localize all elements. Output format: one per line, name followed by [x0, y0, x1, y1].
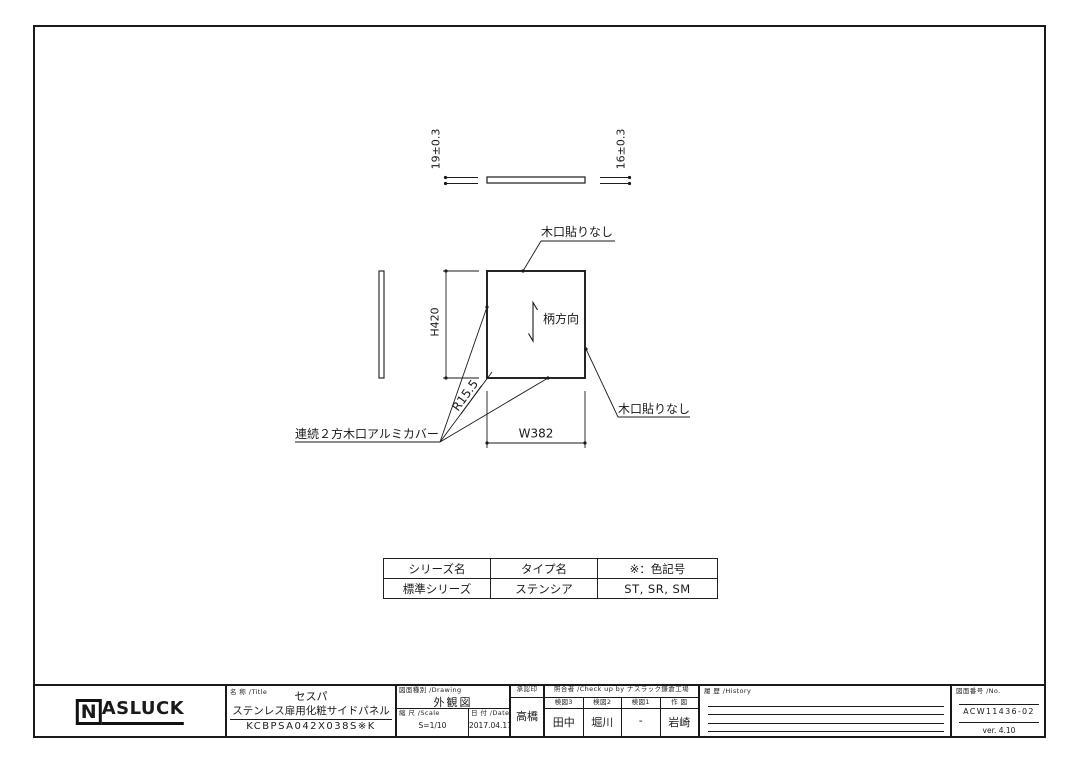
dimension-height: H420: [429, 307, 442, 336]
spec-value-series: 標準シリーズ: [384, 579, 491, 599]
date-cell: 日 付 /Date 2017.04.17: [469, 709, 509, 736]
dimension-thickness-right: 16±0.3: [615, 129, 628, 170]
history-rule: [708, 706, 944, 707]
number-rule: [959, 704, 1039, 705]
dimension-thickness-left: 19±0.3: [430, 129, 443, 170]
check-col-3-name: 田中: [545, 714, 583, 730]
scale-value: S=1/10: [397, 721, 468, 730]
title-cell: 名 称 /Title セスパ ステンレス扉用化粧サイドパネル KCBPSA042…: [227, 686, 397, 736]
title-row: 名 称 /Title セスパ: [229, 687, 393, 702]
dimension-width: W382: [519, 428, 554, 441]
drawing-type-label: 図面種別 /Drawing: [399, 687, 461, 694]
spec-header-series: シリーズ名: [384, 559, 491, 579]
drawing-version: ver. 4.10: [952, 726, 1046, 735]
spec-header-type: タイプ名: [491, 559, 598, 579]
logo-boxed-n: N: [76, 699, 102, 725]
number-rule: [959, 722, 1039, 723]
check-col-3-label: 検図3: [545, 699, 583, 709]
check-col-1: 検図1 -: [622, 698, 661, 736]
date-label: 日 付 /Date: [471, 710, 509, 717]
drawing-type-value: 外観図: [397, 694, 509, 710]
drawing-number-label: 図面番号 /No.: [956, 688, 1001, 695]
grain-direction-label: 柄方向: [543, 313, 579, 326]
scale-cell: 縮 尺 /Scale S=1/10: [397, 709, 469, 736]
history-label: 履 歴 /History: [704, 688, 751, 695]
drawing-number: ACW11436-02: [952, 707, 1046, 716]
check-col-draw-name: 岩崎: [661, 714, 699, 730]
spec-header-colorcode: ※：色記号: [598, 559, 718, 579]
model-code: KCBPSA042X038S※K: [227, 721, 395, 732]
date-value: 2017.04.17: [469, 721, 509, 730]
check-col-1-name: -: [622, 714, 660, 727]
aluminum-cover-note: 連続２方木口アルミカバー: [295, 428, 439, 441]
drawing-type-cell: 図面種別 /Drawing 外観図 縮 尺 /Scale S=1/10 日 付 …: [397, 686, 511, 736]
check-col-1-label: 検図1: [622, 699, 660, 709]
check-col-2-name: 堀川: [584, 714, 622, 730]
history-cell: 履 歴 /History: [700, 686, 952, 736]
drawing-type-row: 図面種別 /Drawing 外観図: [397, 686, 509, 709]
approval-label: 承認印: [511, 686, 543, 698]
spec-value-type: ステンシア: [491, 579, 598, 599]
checkup-cell: 照合者 /Check up by ナスラック鎌倉工場 検図3 田中 検図2 堀川…: [545, 686, 700, 736]
title-block: NASLUCK 名 称 /Title セスパ ステンレス扉用化粧サイドパネル K…: [33, 684, 1046, 738]
history-rule: [708, 714, 944, 715]
history-rule: [708, 731, 944, 732]
logo-cell: NASLUCK: [35, 686, 227, 736]
product-series: セスパ: [229, 688, 393, 704]
checkup-columns: 検図3 田中 検図2 堀川 検図1 - 作 図 岩崎: [545, 698, 698, 736]
check-col-draw-label: 作 図: [661, 699, 699, 709]
edge-note-top: 木口貼りなし: [541, 226, 613, 239]
nasluck-logo: NASLUCK: [76, 697, 184, 725]
sheet-border: [33, 25, 1046, 738]
check-col-3: 検図3 田中: [545, 698, 584, 736]
scale-label: 縮 尺 /Scale: [399, 710, 440, 717]
logo-wordmark: ASLUCK: [102, 697, 185, 725]
edge-note-right: 木口貼りなし: [618, 403, 690, 416]
checkup-label: 照合者 /Check up by ナスラック鎌倉工場: [545, 686, 698, 698]
check-col-draw: 作 図 岩崎: [661, 698, 699, 736]
spec-value-colorcode: ST, SR, SM: [598, 579, 718, 599]
spec-table: シリーズ名 タイプ名 ※：色記号 標準シリーズ ステンシア ST, SR, SM: [383, 558, 718, 599]
drawing-sheet: 19±0.3 16±0.3 H420 R15.5 W382 柄方向 木口貼りなし…: [0, 0, 1080, 763]
history-rule: [708, 723, 944, 724]
product-name: ステンレス扉用化粧サイドパネル: [230, 703, 392, 720]
approval-name: 高橋: [511, 708, 543, 724]
approval-cell: 承認印 高橋: [511, 686, 545, 736]
check-col-2: 検図2 堀川: [584, 698, 623, 736]
drawing-number-cell: 図面番号 /No. ACW11436-02 ver. 4.10: [952, 686, 1046, 736]
check-col-2-label: 検図2: [584, 699, 622, 709]
